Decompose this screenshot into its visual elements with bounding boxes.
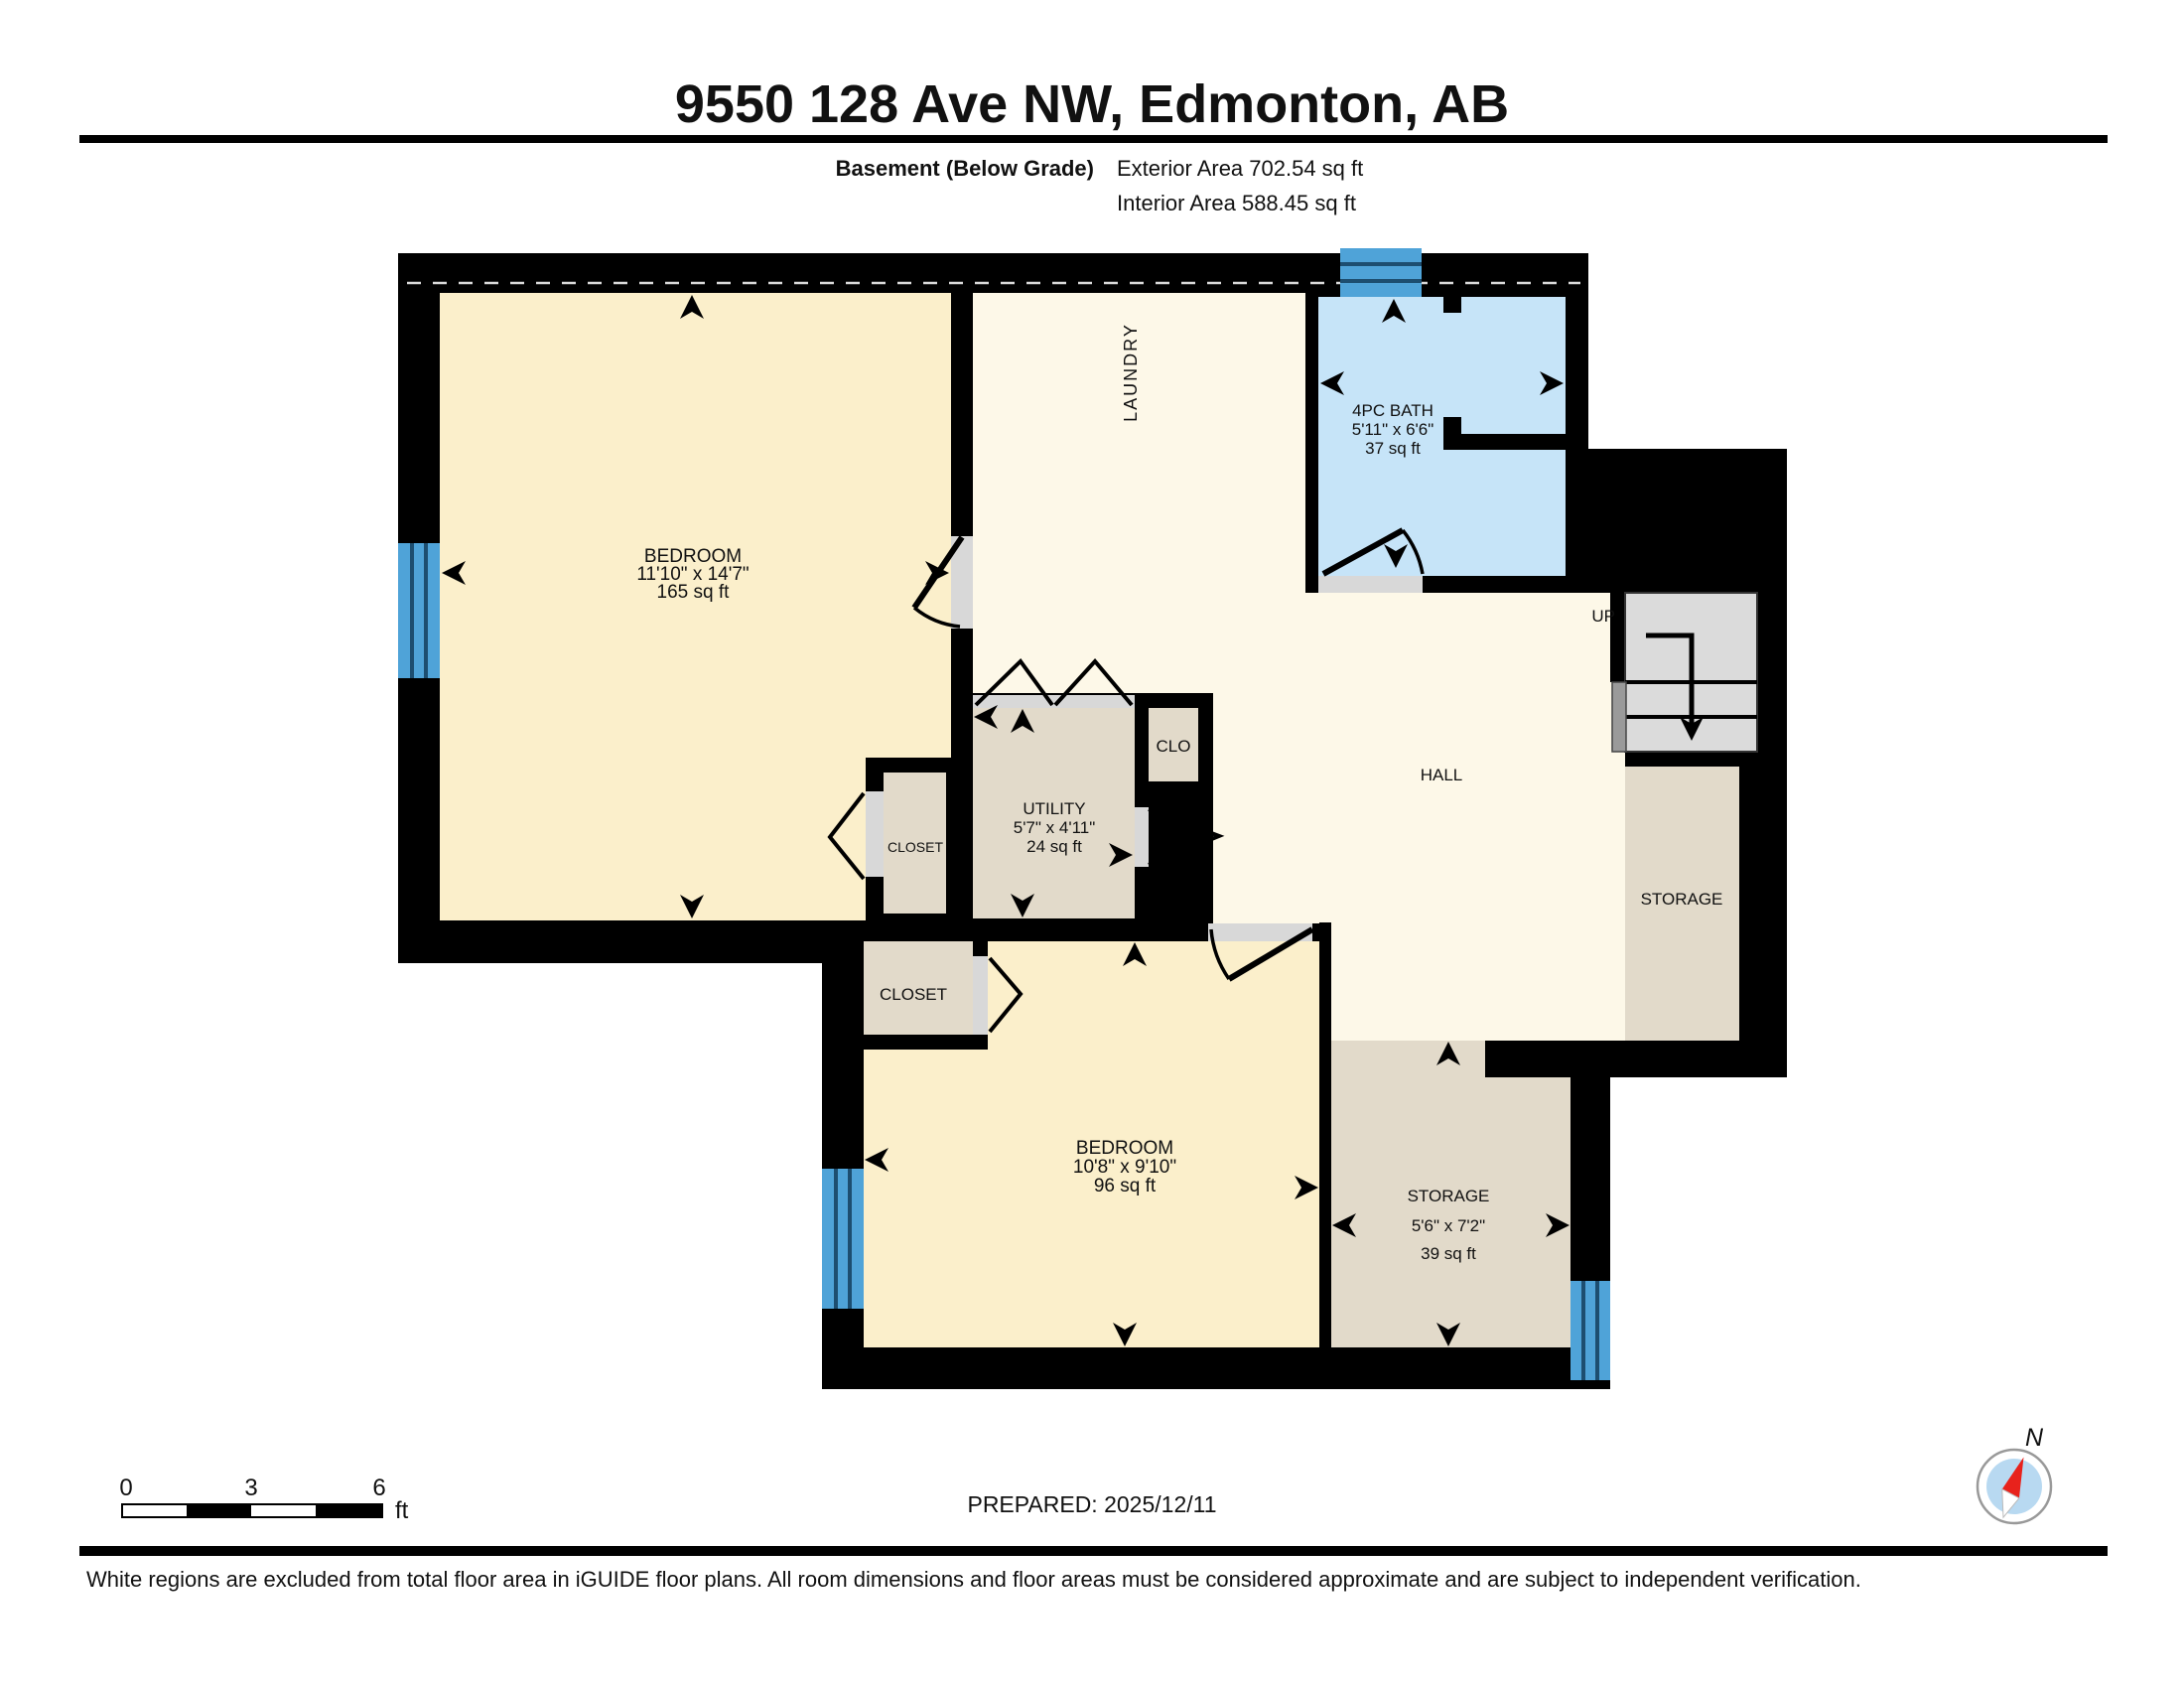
compass: N	[1978, 1424, 2051, 1523]
utility-door-threshold	[973, 695, 1135, 708]
stairs-up	[1610, 593, 1757, 752]
utility-dims: 5'7" x 4'11"	[1014, 818, 1096, 837]
clo-name: CLO	[1157, 737, 1191, 756]
utility-side-door-threshold	[1135, 807, 1149, 867]
storage-lower-window	[1570, 1281, 1610, 1380]
bath-name: 4PC BATH	[1352, 401, 1433, 420]
closet-lower-threshold	[973, 956, 988, 1035]
prepared-date: PREPARED: 2025/12/11	[967, 1491, 1216, 1517]
footer-rule	[79, 1546, 2108, 1556]
hall-name: HALL	[1421, 766, 1463, 784]
shower-wall-stub	[1443, 434, 1588, 450]
scale-tick-0: 0	[119, 1475, 132, 1501]
closet-lower-name: CLOSET	[880, 985, 947, 1004]
scale-tick-3: 3	[244, 1475, 257, 1501]
bath-window	[1340, 248, 1422, 297]
floor-plan-page: 9550 128 Ave NW, Edmonton, AB Basement (…	[0, 0, 2184, 1688]
room-utility	[951, 661, 1219, 933]
bath-area: 37 sq ft	[1365, 439, 1421, 458]
compass-n-label: N	[2025, 1424, 2044, 1452]
stairs-up-label: UP	[1591, 607, 1615, 626]
bedroom1-area: 165 sq ft	[657, 582, 731, 603]
storage-lower-name: STORAGE	[1408, 1187, 1490, 1205]
shower-wall-stub	[1443, 297, 1461, 313]
storage-lower-wall	[1485, 1041, 1610, 1077]
stairs-rail	[1612, 682, 1626, 752]
utility-name: UTILITY	[1023, 799, 1085, 818]
storage-lower-dims: 5'6" x 7'2"	[1412, 1216, 1485, 1235]
bedroom2-area: 96 sq ft	[1094, 1176, 1157, 1196]
bath-door-threshold	[1318, 576, 1423, 593]
storage-upper-name: STORAGE	[1641, 890, 1723, 909]
closet-mid-name: CLOSET	[887, 839, 943, 855]
bedroom2-dims: 10'8" x 9'10"	[1073, 1157, 1176, 1178]
page-title: 9550 128 Ave NW, Edmonton, AB	[675, 74, 1509, 134]
interior-area: Interior Area 588.45 sq ft	[1117, 191, 1356, 215]
scale-unit: ft	[395, 1497, 409, 1524]
exterior-area: Exterior Area 702.54 sq ft	[1117, 156, 1363, 181]
utility-area: 24 sq ft	[1026, 837, 1082, 856]
bath-dims: 5'11" x 6'6"	[1352, 420, 1434, 439]
bedroom1-window	[398, 543, 440, 678]
disclaimer-text: White regions are excluded from total fl…	[86, 1567, 1861, 1592]
bedroom2-name: BEDROOM	[1076, 1138, 1173, 1159]
header-rule	[79, 135, 2108, 143]
floor-plan: BEDROOM 11'10" x 14'7" 165 sq ft LAUNDRY…	[398, 248, 1787, 1389]
closet-mid-threshold	[866, 791, 884, 877]
scale-tick-6: 6	[372, 1475, 385, 1501]
bedroom2-window	[822, 1169, 864, 1309]
scale-bar: 0 3 6 ft	[119, 1475, 408, 1524]
laundry-name: LAUNDRY	[1121, 323, 1141, 422]
storage-lower-area: 39 sq ft	[1421, 1244, 1476, 1263]
floor-label: Basement (Below Grade)	[836, 156, 1094, 181]
